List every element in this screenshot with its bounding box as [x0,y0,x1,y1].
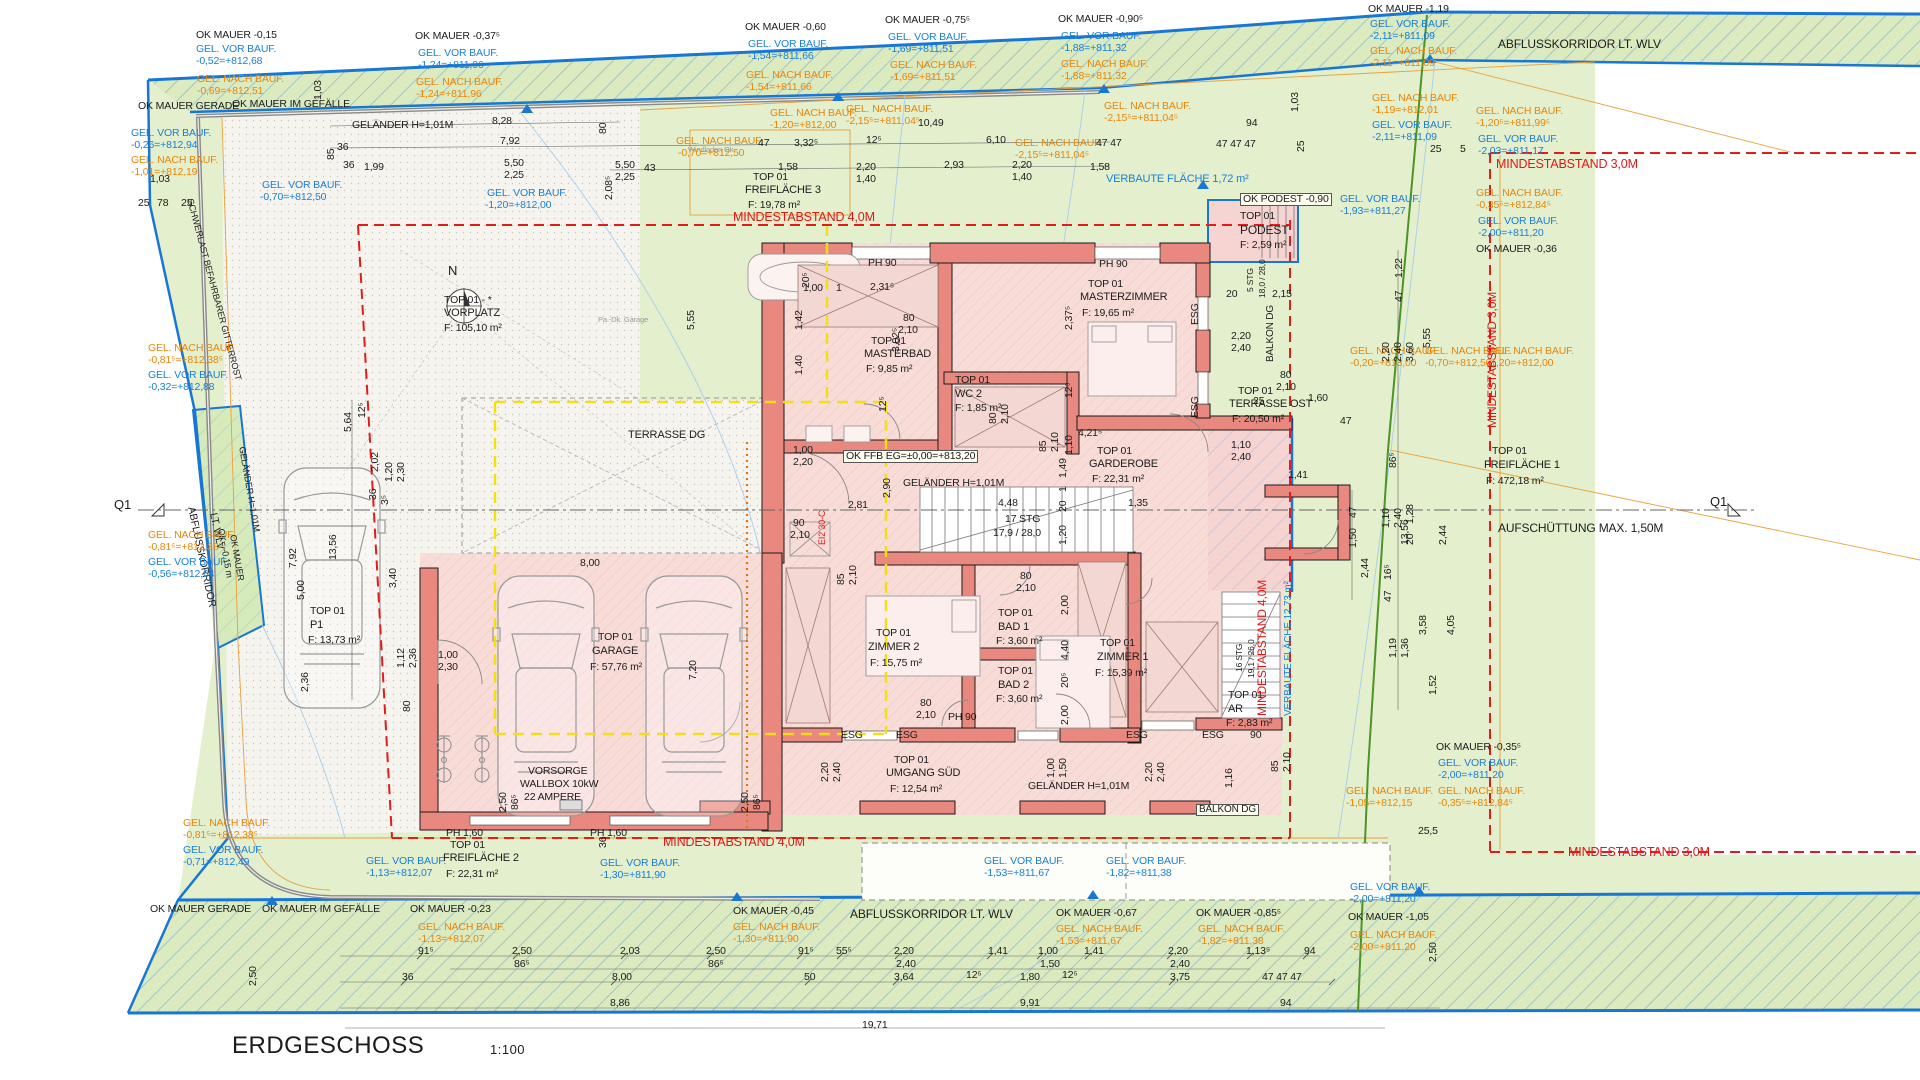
plan-label: 47 [1394,291,1405,302]
plan-label: -0,70=+812,50 [260,192,326,203]
plan-label: 2,20 [894,946,914,957]
plan-label: OK MAUER -0,75⁵ [885,15,970,26]
plan-label: 2,20 [820,762,831,782]
plan-label: -1,54=+811,66 [746,82,812,93]
plan-label: 1,49 [1058,458,1069,478]
plan-label: 2,50 [706,946,726,957]
plan-label: 2,10 [790,530,810,541]
plan-label: GEL. VOR BAUF. [148,557,228,568]
plan-label: 1,41 [1084,946,1104,957]
plan-label: 2,02 [370,452,381,472]
plan-label: EI2 30-C [818,511,827,545]
plan-label: 20 [1405,534,1416,545]
plan-label: 2,30 [438,662,458,673]
plan-label: 22 AMPERE [524,792,581,803]
plan-label: 2,50 [248,966,259,986]
plan-label: 36 [598,837,609,848]
plan-label: 1,80 [1020,972,1040,983]
plan-label: GEL. NACH BAUF. [1476,188,1563,199]
plan-label: 80 [402,701,413,712]
plan-label: -0,81⁵=+812,38⁵ [148,542,223,553]
plan-label: GEL. VOR BAUF. [262,180,342,191]
plan-label: GEL. NACH BAUF. [1015,138,1102,149]
plan-label: VORPLATZ [444,308,500,319]
plan-label: OK MAUER IM GEFÄLLE [262,904,380,915]
plan-label: -2,00=+811,20 [1350,894,1416,905]
plan-label: TOP 01 [998,666,1033,677]
plan-label: 85 [1038,441,1049,452]
plan-label: 94 [1280,998,1291,1009]
plan-label: -0,69=+812,51 [197,86,263,97]
plan-label: PH 90 [1099,259,1127,270]
plan-label: 47 47 47 [1216,139,1256,150]
plan-label: GEL. VOR BAUF. [1061,31,1141,42]
plan-label: 50 [804,972,815,983]
plan-label: BALKON DG [1266,305,1276,362]
plan-label: 1,52 [1428,675,1439,695]
plan-label: 20 [1058,501,1069,512]
plan-label: 8,00 [612,972,632,983]
plan-label: 2,20 [856,162,876,173]
plan-label: 5,55 [1422,328,1433,348]
plan-label: -1,93=+811,27 [1340,206,1406,217]
plan-label: F: 3,60 m² [996,694,1042,705]
plan-label: OK MAUER -0,35⁵ [1436,742,1521,753]
plan-label: 5 STG [1246,268,1255,292]
plan-label: 16 STG [1235,644,1244,672]
plan-label: -1,30=+811,90 [600,870,666,881]
plan-label: 2,40 [1393,508,1404,528]
plan-label: 1,20 [1058,525,1069,545]
plan-label: 7,92 [500,136,520,147]
plan-label: 91⁵ [798,946,814,957]
plan-label: GEL. VOR BAUF. [366,856,446,867]
plan-label: FREIFLÄCHE 2 [443,853,519,864]
plan-label: 17,9 / 28,0 [993,528,1041,539]
plan-label: OK MAUER -0,85⁵ [1196,908,1281,919]
plan-label: -2,11=+811,09 [1370,31,1435,42]
plan-label: -1,13=+812,07 [418,934,484,945]
plan-label: GEL. NACH BAUF. [1104,101,1191,112]
plan-label: 91⁵ [418,946,434,957]
plan-label: 2,31⁵ [870,282,894,293]
plan-label: 36 [368,489,379,500]
plan-label: 1,03 [313,80,324,100]
plan-label: 94 [1304,946,1315,957]
plan-label: 1,41 [988,946,1008,957]
plan-label: 2,10 [1050,432,1061,452]
plan-label: 4,05 [1446,615,1457,635]
plan-label: TOP 01 [1492,446,1527,457]
plan-label: MASTERBAD [864,349,931,360]
plan-label: -1,13=+812,07 [366,868,432,879]
plan-label: ESG [1190,396,1201,418]
plan-label: FREIFLÄCHE 1 [1484,460,1560,471]
plan-label: 2,10 [916,710,936,721]
plan-label: ESG [841,730,863,741]
plan-label: 47 47 47 [1262,972,1302,983]
plan-label: 4,40 [1060,640,1071,660]
plan-label: 1,50 [1040,959,1060,970]
plan-label: 1,03 [1290,92,1301,112]
plan-label: 5,64 [343,412,354,432]
plan-label: VORSORGE [528,766,587,777]
plan-label: ABFLUSSKORRIDOR LT. WLV [1498,38,1661,50]
plan-label: UMGANG SÜD [886,768,960,779]
floor-plan-canvas: ERDGESCHOSS 1:100 OK MAUER -0,15GEL. VOR… [0,0,1920,1080]
plan-label: -0,35⁵=+812,84⁵ [1438,798,1513,809]
plan-label: GEL. NACH BAUF. [1346,786,1433,797]
plan-label: GEL. VOR BAUF. [600,858,680,869]
plan-label: TOP 01 [1097,446,1132,457]
plan-label: ESG [1202,730,1224,741]
plan-label: Windladen Ok. [688,146,735,154]
plan-label: -2,11=+811,09 [1372,132,1437,143]
plan-label: -1,82=+811,38 [1106,868,1172,879]
plan-label: GEL. NACH BAUF. [197,74,284,85]
plan-label: TOP 01 - * [444,295,492,306]
plan-label: 5,00 [296,580,307,600]
plan-label: 4,48 [998,498,1018,509]
plan-label: 20⁵ [1060,672,1071,688]
plan-label: TOP 01 [1240,211,1275,222]
plan-label: OK MAUER GERADE [138,101,239,112]
plan-label: TOP 01 [998,608,1033,619]
plan-label: 2,03 [620,946,640,957]
plan-label: 86⁵ [510,794,521,810]
plan-label: GEL. VOR BAUF. [748,39,828,50]
plan-label: 86⁵ [514,959,530,970]
plan-label: 1,00 [793,445,813,456]
bottom-drain-corridor [128,893,1920,1013]
plan-label: GEL. VOR BAUF. [1350,882,1430,893]
plan-label: -2,15⁵=+811,04⁵ [846,116,920,127]
plan-label: 1,41 [1288,470,1308,481]
plan-label: Q1 [1710,495,1727,508]
plan-label: -2,03=+811,17 [1478,146,1544,157]
plan-label: -0,32=+812,88 [148,382,214,393]
plan-label: 47 47 [1096,138,1122,149]
plan-label: -1,53=+811,67 [984,868,1050,879]
plan-label: 36 [343,160,354,171]
plan-label: P1 [310,620,323,631]
plan-label: 20 [1226,289,1237,300]
plan-label: 25 [1430,144,1441,155]
plan-label: 12⁵ [878,396,889,412]
plan-label: GEL. VOR BAUF. [1340,194,1420,205]
plan-label: 2,10 [848,565,859,585]
plan-label: TOP 01 [1100,638,1135,649]
drawing-title: ERDGESCHOSS [232,1032,424,1060]
plan-label: GEL. NACH BAUF. [1056,924,1143,935]
plan-label: 1,40 [856,174,876,185]
plan-label: 8,00 [580,558,600,569]
plan-label: 25 [1253,396,1264,407]
plan-label: OK MAUER -0,45 [733,906,814,917]
plan-label: 2,10 [1000,404,1011,424]
plan-label: 86⁵ [1388,452,1399,468]
plan-label: VERBAUTE FLÄCHE 1,72 m² [1106,174,1249,185]
plan-label: ESG [896,730,918,741]
plan-label: 17 STG [1005,514,1040,525]
plan-label: 47 [758,138,769,149]
plan-label: 3,32⁵ [794,138,818,149]
plan-label: 5,50 [615,160,635,171]
plan-label: -0,26=+812,94 [131,140,197,151]
plan-label: 2,37⁵ [1064,306,1075,330]
plan-label: 47 [1383,591,1394,602]
plan-label: GEL. NACH BAUF. [846,104,933,115]
plan-label: 2,10 [1276,382,1296,393]
plan-label: GEL. NACH BAUF. [183,818,270,829]
plan-label: 2,50 [740,792,751,812]
plan-label: 8,86 [610,998,630,1009]
plan-label: OK MAUER -0,67 [1056,908,1137,919]
plan-label: GEL. VOR BAUF. [418,48,498,59]
plan-label: 12⁵ [1062,970,1078,981]
plan-label: 80 [1020,571,1031,582]
plan-label: 2,20 [1231,331,1251,342]
plan-label: -2,00=+811,20 [1478,228,1544,239]
plan-label: 47 [1348,507,1359,518]
plan-label: 2,44 [1360,558,1371,578]
plan-label: TERRASSE DG [628,430,705,441]
plan-label: F: 2,59 m² [1240,240,1286,251]
plan-label: OK MAUER -0,37⁵ [415,31,500,42]
plan-label: OK PODEST -0,90 [1240,193,1332,206]
plan-label: GEL. VOR BAUF. [1478,216,1558,227]
plan-label: MINDESTABSTAND 4,0M [733,211,875,224]
plan-label: 1,00 [438,650,458,661]
plan-label: 2,20 [1168,946,1188,957]
plan-label: TOP 01 [876,628,911,639]
plan-label: 47 [1340,416,1351,427]
plan-label: 1 [836,283,842,294]
plan-label: 85 [326,149,337,160]
plan-label: 2,44 [1438,525,1449,545]
plan-label: OK MAUER GERADE [150,904,251,915]
plan-label: -2,00=+811,20 [1350,942,1416,953]
plan-label: 2,81 [848,500,868,511]
plan-label: 2,20 [1012,160,1032,171]
plan-label: F: 19,65 m² [1082,308,1134,319]
plan-label: 2,40 [896,959,916,970]
plan-label: F: 19,78 m² [748,200,800,211]
plan-label: TOP 01 [894,755,929,766]
plan-label: 25,5 [1418,826,1438,837]
plan-label: 1,50 [1348,528,1359,548]
plan-label: -0,81⁵=+812,38⁵ [183,830,258,841]
plan-label: GARAGE [592,646,638,657]
plan-label: 2,40 [1231,343,1251,354]
plan-label: GEL. NACH BAUF. [746,70,833,81]
plan-label: -0,35⁵=+812,84⁵ [1476,200,1551,211]
plan-label: F: 20,50 m² [1232,414,1284,425]
plan-label: 2,20 [1381,342,1392,362]
plan-label: GEL. NACH BAUF. [1476,106,1563,117]
plan-label: -2,00=+811,20 [1438,770,1504,781]
plan-label: -1,69=+811,51 [890,72,956,83]
plan-label: GEL. VOR BAUF. [148,370,228,381]
plan-label: -1,20=+812,00 [485,200,551,211]
plan-label: PH 90 [868,258,896,269]
plan-label: ZIMMER 1 [1097,652,1148,663]
plan-label: 2,36 [408,648,419,668]
plan-label: 8,28 [492,116,512,127]
plan-label: -0,52=+812,68 [196,56,262,67]
plan-label: 12⁵ [1064,382,1075,398]
plan-label: -1,88=+811,32 [1061,71,1127,82]
plan-label: -0,70=+812,50 [1425,358,1491,369]
plan-label: 1,10 [1064,435,1075,455]
plan-label: 80 [1280,370,1291,381]
plan-label: 1,00 [1046,758,1057,778]
plan-label: 2,20 [1144,762,1155,782]
plan-label: GEL. NACH BAUF. [1350,930,1437,941]
plan-label: 1,50 [1058,758,1069,778]
plan-label: 1,40 [794,355,805,375]
plan-label: 3,60 [1405,342,1416,362]
plan-label: 19,71 [862,1020,888,1031]
plan-label: ESG [1126,730,1148,741]
plan-label: TOP 01 [450,840,485,851]
plan-label: F: 2,83 m² [1226,718,1272,729]
plan-label: GEL. VOR BAUF. [1438,758,1518,769]
plan-label: AUFSCHÜTTUNG MAX. 1,50M [1498,522,1663,534]
plan-label: TOP 01 [753,172,788,183]
plan-label: 86⁵ [752,794,763,810]
plan-label: TOP 01 [1088,279,1123,290]
plan-label: 12⁵ [966,970,982,981]
plan-label: GEL. NACH BAUF. [770,108,857,119]
plan-label: 10,49 [918,118,944,129]
plan-label: 2,40 [832,762,843,782]
plan-label: TERRASSE OST [1229,399,1312,410]
plan-label: GEL. VOR BAUF. [1370,19,1450,30]
plan-label: -0,71=+812,49 [183,857,249,868]
plan-label: 20⁵ [801,272,812,288]
plan-label: GEL. NACH BAUF. [1061,59,1148,70]
plan-label: 2,40 [1156,762,1167,782]
plan-label: -1,01=+812,19 [131,167,197,178]
plan-label: GEL. NACH BAUF. [1438,786,1525,797]
plan-label: F: 105,10 m² [444,323,502,334]
plan-label: -2,15⁵=+811,04⁵ [1015,150,1089,161]
plan-label: OK MAUER -0,36 [1476,244,1557,255]
plan-label: 2,08⁵ [604,176,615,200]
plan-label: 2,10 [1016,583,1036,594]
plan-label: WC 2 [955,389,982,400]
plan-label: 1,22 [1394,258,1405,278]
plan-label: 3,40 [388,568,399,588]
plan-label: Pa.-Dk. Garage [598,316,648,324]
plan-label: GELÄNDER H=1,01M [1028,781,1129,792]
plan-label: OK MAUER -0,90⁵ [1058,14,1143,25]
plan-label: OK MAUER -0,23 [410,904,491,915]
plan-label: GEL. NACH BAUF. [131,155,218,166]
plan-label: F: 22,31 m² [446,869,498,880]
plan-label: 1,28 [1405,504,1416,524]
plan-label: 2,00 [1060,705,1071,725]
plan-label: -2,11=+811,09 [1370,58,1435,69]
plan-label: GEL. VOR BAUF. [196,44,276,55]
plan-label: ESG [1190,303,1201,325]
plan-label: -1,54=+811,66 [748,51,814,62]
plan-label: 1,10 [1381,508,1392,528]
plan-label: GEL. VOR BAUF. [1372,120,1452,131]
plan-label: OK MAUER -0,60 [745,22,826,33]
plan-label: OK MAUER -1,19 [1368,4,1449,15]
plan-label: MINDESTABSTAND 3,0M [1568,846,1710,859]
plan-label: 36 [402,972,413,983]
plan-label: 43 [644,163,655,174]
plan-label: 1 [1058,486,1069,492]
plan-label: OK MAUER -1,05 [1348,912,1429,923]
plan-label: FREIFLÄCHE 3 [745,185,821,196]
plan-label: GEL. VOR BAUF. [131,128,211,139]
plan-label: GEL. VOR BAUF. [888,32,968,43]
plan-label: 2,15 [1272,289,1292,300]
plan-label: GEL. NACH BAUF. [1487,346,1574,357]
plan-label: 3,64 [894,972,914,983]
plan-label: GEL. NACH BAUF. [148,530,235,541]
plan-label: 85 [836,574,847,585]
plan-label: F: 12,54 m² [890,784,942,795]
plan-label: 90 [793,518,804,529]
plan-label: 5,50 [504,158,524,169]
plan-label: 1,13⁵ [1246,946,1270,957]
plan-label: 2,30 [396,462,407,482]
plan-label: 2,25 [504,170,524,181]
plan-label: TOP 01 [871,336,906,347]
plan-label: -1,88=+811,32 [1061,43,1127,54]
plan-label: 80 [920,698,931,709]
plan-label: 2,20 [793,457,813,468]
plan-label: 2,00 [1060,595,1071,615]
plan-label: 1,60 [1308,393,1328,404]
plan-label: 18,0 / 28,0 [1258,259,1267,298]
plan-label: Q1 [114,498,131,511]
plan-label: 25 [1296,141,1307,152]
plan-label: 3,58 [1418,615,1429,635]
plan-label: 12⁵ [866,135,882,146]
plan-label: 2,90 [882,478,893,498]
plan-label: WALLBOX 10kW [520,779,598,790]
plan-label: F: 15,75 m² [870,658,922,669]
plan-label: PH 90 [948,712,976,723]
plan-label: 2,36 [300,672,311,692]
plan-label: AR [1228,704,1243,715]
plan-label: 1,42 [794,310,805,330]
plan-label: -2,15⁵=+811,04⁵ [1104,113,1178,124]
plan-label: PH 1,60 [446,828,483,839]
plan-label: MINDESTABSTAND 3,0M [1496,158,1638,171]
plan-label: 7,20 [688,660,699,680]
plan-label: OK MAUER IM GEFÄLLE [232,99,350,110]
plan-label: F: 9,85 m² [866,364,912,375]
plan-label: 4,21⁵ [1078,428,1102,439]
plan-label: -1,30=+811,90 [733,934,799,945]
plan-label: MASTERZIMMER [1080,292,1167,303]
plan-label: 55⁵ [836,946,852,957]
plan-label: 1,12 [396,648,407,668]
plan-label: 9,91 [1020,998,1040,1009]
plan-label: GEL. NACH BAUF. [1370,46,1457,57]
plan-label: 2,40 [1231,452,1251,463]
plan-label: 1,00 [1038,946,1058,957]
plan-label: 80 [903,313,914,324]
plan-label: GEL. NACH BAUF. [148,343,235,354]
